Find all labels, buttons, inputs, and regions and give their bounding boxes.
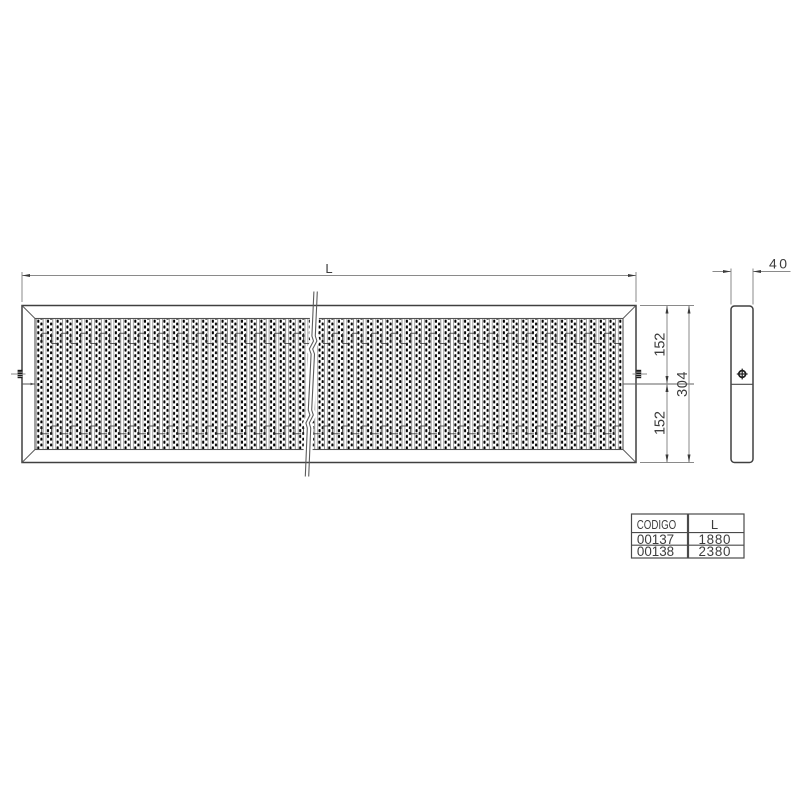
svg-text:CODIGO: CODIGO bbox=[637, 517, 677, 532]
svg-text:152: 152 bbox=[653, 411, 669, 435]
svg-text:304: 304 bbox=[675, 371, 691, 397]
svg-text:L: L bbox=[711, 517, 718, 532]
svg-text:2380: 2380 bbox=[699, 544, 731, 559]
svg-text:00138: 00138 bbox=[637, 544, 674, 559]
svg-text:L: L bbox=[325, 261, 332, 276]
svg-text:152: 152 bbox=[653, 333, 669, 357]
